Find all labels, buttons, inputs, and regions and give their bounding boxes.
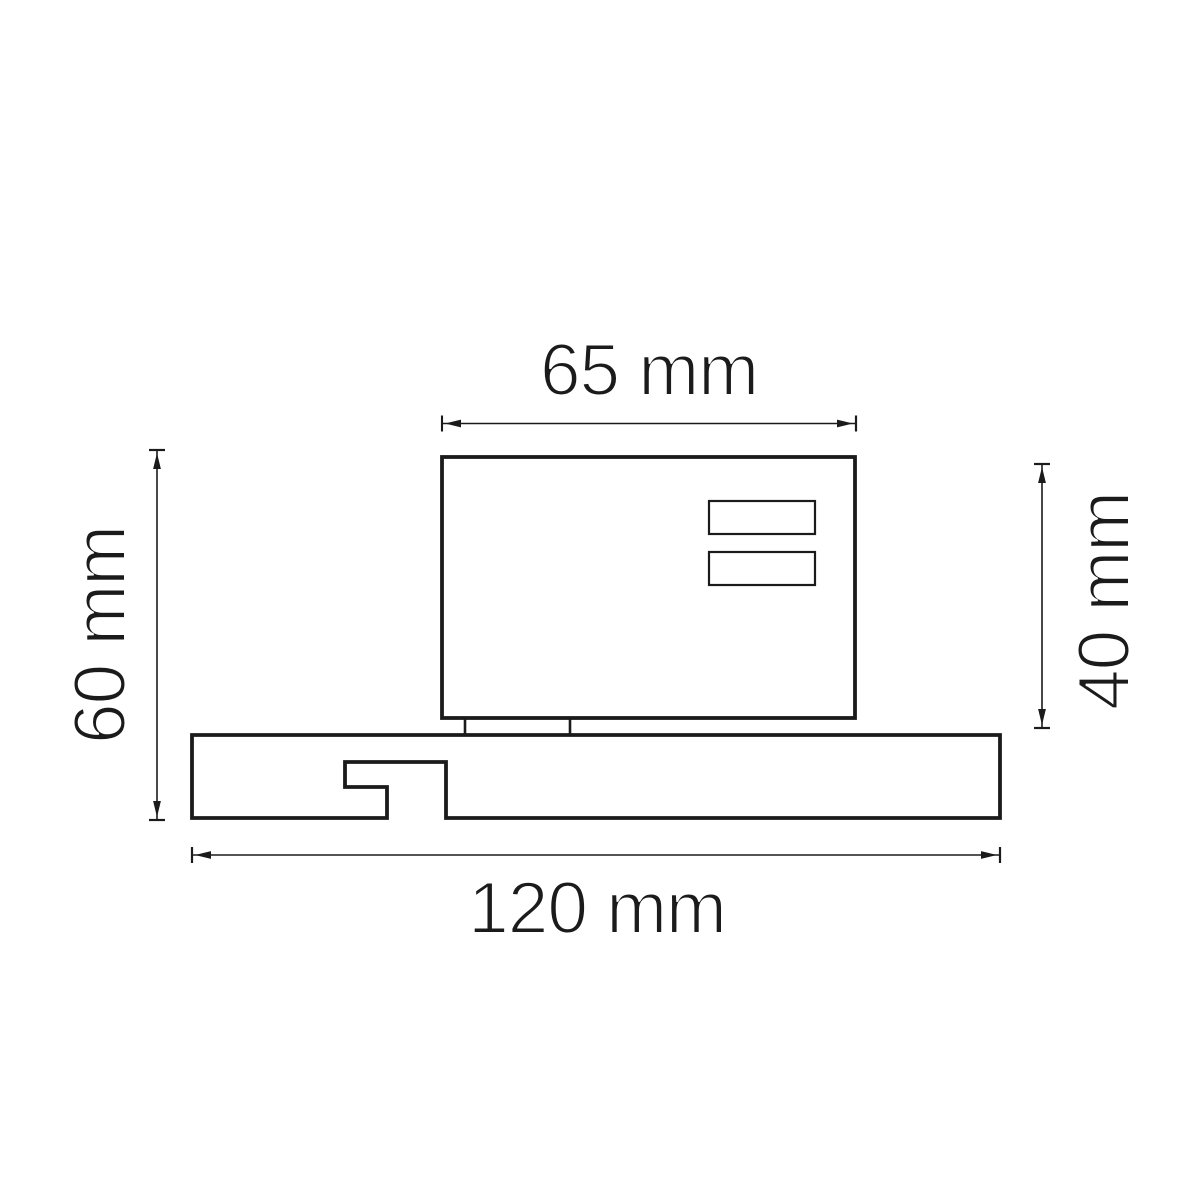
svg-text:65 mm: 65 mm	[540, 330, 758, 411]
svg-text:120 mm: 120 mm	[468, 868, 726, 949]
svg-text:40 mm: 40 mm	[1064, 492, 1145, 710]
svg-text:60 mm: 60 mm	[60, 526, 141, 744]
